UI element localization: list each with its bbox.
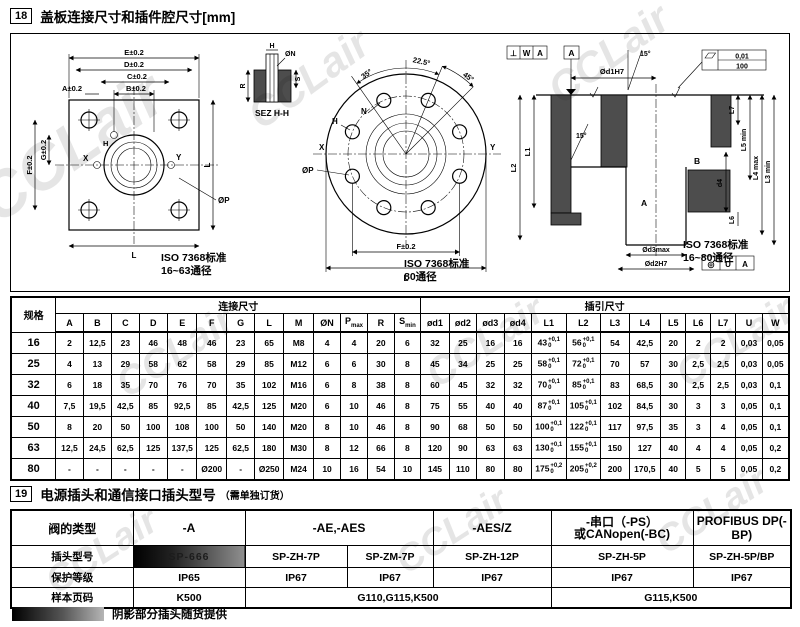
dim-cell: 85	[197, 396, 226, 417]
column-header: R	[368, 314, 394, 333]
dim-label-g: G±0.2	[39, 140, 48, 160]
dim-cell: 155+0,10	[566, 438, 601, 459]
dim-cell: 8	[394, 375, 421, 396]
column-header: ØN	[314, 314, 340, 333]
dim-cell: 10	[314, 459, 340, 481]
dim-cell: 56+0,10	[566, 332, 601, 354]
shaded-note: 阴影部分插头随货提供	[12, 606, 227, 622]
column-header: L3	[601, 314, 629, 333]
column-header: L5	[661, 314, 686, 333]
protection-cell: IP67	[551, 568, 693, 588]
dim-cell: 80	[504, 459, 531, 481]
dim-cell: 3	[686, 396, 710, 417]
dim-cell: 6	[314, 396, 340, 417]
column-header: Pmax	[340, 314, 367, 333]
dim-cell: 35	[226, 375, 254, 396]
dim-cell: 35	[112, 375, 139, 396]
dim-cell: 83	[601, 375, 629, 396]
dim-cell: 45	[421, 354, 449, 375]
dim-cell: 127	[629, 438, 661, 459]
dim-cell: 100+0,10	[531, 417, 566, 438]
dim-cell: 30	[368, 354, 394, 375]
dim-cell: 0,05	[736, 438, 762, 459]
dim-cell: 46	[368, 396, 394, 417]
dim-cell: 108	[168, 417, 197, 438]
dim-l3: L3 min	[765, 161, 772, 184]
datum-a: A	[568, 48, 574, 58]
dim-cell: 38	[368, 375, 394, 396]
dim-cell: 20	[368, 332, 394, 354]
dim-cell: 205+0,20	[566, 459, 601, 481]
column-header: L2	[566, 314, 601, 333]
dim-cell: 72+0,10	[566, 354, 601, 375]
dim-cell: 70	[197, 375, 226, 396]
dim-cell: 43+0,10	[531, 332, 566, 354]
angle-15-left: 15°	[576, 132, 587, 140]
dim-cell: 100	[139, 417, 167, 438]
dim-label-y: Y	[176, 153, 182, 162]
dim-cell: 6	[56, 375, 83, 396]
section19-number: 19	[10, 486, 32, 502]
dim-cell: 0,05	[736, 417, 762, 438]
dim-cell: M24	[283, 459, 314, 481]
plug-table: 阀的类型-A-AE,-AES-AES/Z-串口（-PS）或CANopen(-BC…	[10, 509, 792, 609]
column-header: B	[83, 314, 111, 333]
dim-d3: Ød3max	[642, 247, 670, 254]
dim-cell: 48	[168, 332, 197, 354]
column-header: ød3	[477, 314, 504, 333]
dim-cell: -	[83, 459, 111, 481]
spec-cell: 32	[11, 375, 56, 396]
dim-cell: 62,5	[112, 438, 139, 459]
square-flange-drawing: X Y H E±0.2 D±0.2 C±0.2 B±0.2 A±0.2 F±0.…	[19, 40, 304, 268]
dim-cell: 68	[449, 417, 476, 438]
dim-cell: 175+0,20	[531, 459, 566, 481]
plug-model-cell: SP-ZH-7P	[245, 546, 347, 568]
table-row: 25413295862582985M12663084534252558+0,10…	[11, 354, 789, 375]
catalog-page-cell: K500	[133, 588, 245, 609]
dim-l5: L5 min	[741, 129, 748, 152]
valve-type-cell: -A	[133, 510, 245, 546]
plug-model-cell: SP-ZH-5P	[551, 546, 693, 568]
dim-cell: 105+0,10	[566, 396, 601, 417]
dim-cell: 19,5	[83, 396, 111, 417]
column-header: ød2	[449, 314, 476, 333]
dim-cell: -	[226, 459, 254, 481]
dim-cell: 180	[255, 438, 283, 459]
label-p: ØP	[302, 166, 314, 175]
dim-cell: -	[56, 459, 83, 481]
dim-cell: 130+0,10	[531, 438, 566, 459]
dim-cell: 2	[710, 332, 735, 354]
dim-cell: 35	[661, 417, 686, 438]
dim-cell: 6	[340, 354, 367, 375]
dim-cell: 32	[421, 332, 449, 354]
dim-cell: 2,5	[686, 354, 710, 375]
dim-label-b: B±0.2	[126, 84, 146, 93]
angle-35: 35°	[359, 67, 373, 81]
dim-cell: 29	[112, 354, 139, 375]
dim-cell: 87+0,10	[531, 396, 566, 417]
column-header: Smin	[394, 314, 421, 333]
dim-cell: 50	[504, 417, 531, 438]
dim-l4: L4 max	[753, 156, 760, 180]
dim-cell: 84,5	[629, 396, 661, 417]
dim-cell: 50	[226, 417, 254, 438]
dim-cell: 0,1	[762, 396, 789, 417]
perp-symbol: ⊥	[510, 49, 517, 58]
dim-cell: 58	[139, 354, 167, 375]
dim-cell: 30	[661, 375, 686, 396]
dim-cell: 62,5	[226, 438, 254, 459]
dim-cell: 60	[421, 375, 449, 396]
protection-cell: IP67	[245, 568, 347, 588]
dim-cell: 16	[477, 332, 504, 354]
dim-cell: 8	[394, 417, 421, 438]
dim-label-d: D±0.2	[124, 60, 144, 69]
dim-d4: d4	[717, 179, 724, 187]
dim-cell: 2,5	[710, 354, 735, 375]
dim-cell: 57	[629, 354, 661, 375]
sez-dim-h: H	[269, 43, 274, 50]
dim-cell: 42,5	[112, 396, 139, 417]
row-label-plug-model: 插头型号	[11, 546, 133, 568]
angle-15-top: 15°	[640, 50, 651, 58]
dim-cell: 62	[168, 354, 197, 375]
dim-cell: 25	[449, 332, 476, 354]
dim-cell: 0,05	[762, 332, 789, 354]
dim-cell: 5	[686, 459, 710, 481]
dim-cell: M8	[283, 332, 314, 354]
dim-cell: 50	[477, 417, 504, 438]
dim-cell: 13	[83, 354, 111, 375]
dim-cell: 0,05	[762, 354, 789, 375]
column-header: F	[197, 314, 226, 333]
dim-cell: 125	[139, 438, 167, 459]
table-row: 16212,5234648462365M8442063225161643+0,1…	[11, 332, 789, 354]
dim-cell: 0,1	[762, 417, 789, 438]
dim-cell: 8	[394, 438, 421, 459]
dim-label-h-hole: H	[103, 139, 108, 148]
dim-cell: 20	[83, 417, 111, 438]
plug-model-cell: SP-ZH-5P/BP	[693, 546, 791, 568]
dim-cell: 30	[661, 354, 686, 375]
dim-cell: 46	[139, 332, 167, 354]
dim-cell: 8	[314, 438, 340, 459]
dim-cell: 30	[661, 396, 686, 417]
column-header: L6	[686, 314, 710, 333]
dim-l2: L2	[509, 164, 518, 173]
dim-cell: 25	[477, 354, 504, 375]
dim-cell: 170,5	[629, 459, 661, 481]
dim-cell: 100	[197, 417, 226, 438]
column-header: U	[736, 314, 762, 333]
dim-cell: 40	[661, 459, 686, 481]
dim-cell: 18	[83, 375, 111, 396]
dim-cell: Ø250	[255, 459, 283, 481]
shaded-swatch	[12, 607, 104, 621]
dim-cell: 10	[340, 396, 367, 417]
dim-cell: 10	[394, 459, 421, 481]
section19-subtitle: （需单独订货）	[220, 487, 290, 502]
dim-cell: 45	[449, 375, 476, 396]
dim-cell: M20	[283, 417, 314, 438]
dim-cell: 76	[168, 375, 197, 396]
dim-cell: 117	[601, 417, 629, 438]
sez-hh-detail: H ØN R S SEZ H-H	[240, 43, 302, 118]
dim-cell: 0,03	[736, 354, 762, 375]
dim-cell: 125	[197, 438, 226, 459]
dim-cell: 0,05	[736, 459, 762, 481]
dim-cell: 8	[394, 396, 421, 417]
dim-cell: 145	[421, 459, 449, 481]
dim-cell: 16	[504, 332, 531, 354]
dim-cell: 3	[686, 417, 710, 438]
dim-cell: 4	[686, 438, 710, 459]
dim-cell: 2	[686, 332, 710, 354]
dim-cell: 16	[340, 459, 367, 481]
column-header: E	[168, 314, 197, 333]
dim-cell: 20	[661, 332, 686, 354]
dim-cell: 46	[197, 332, 226, 354]
dim-cell: 75	[421, 396, 449, 417]
section18-title: 18 盖板连接尺寸和插件腔尺寸[mm]	[10, 6, 235, 26]
angle-45: 45°	[461, 70, 475, 84]
dim-cell: 6	[394, 332, 421, 354]
protection-cell: IP67	[693, 568, 791, 588]
dim-cell: 122+0,10	[566, 417, 601, 438]
label-n: N	[361, 107, 367, 116]
section19-title: 19 电源插头和通信接口插头型号 （需单独订货）	[10, 484, 290, 504]
dim-cell: 58	[197, 354, 226, 375]
spec-cell: 50	[11, 417, 56, 438]
dim-cell: 54	[601, 332, 629, 354]
fig1-caption: ISO 7368标准16~63通径	[161, 252, 226, 278]
column-header: D	[139, 314, 167, 333]
column-header: G	[226, 314, 254, 333]
dim-cell: 63	[477, 438, 504, 459]
dim-cell: 23	[112, 332, 139, 354]
row-label-catalog-page: 样本页码	[11, 588, 133, 609]
dim-cell: 2	[56, 332, 83, 354]
dim-cell: Ø200	[197, 459, 226, 481]
dim-cell: M30	[283, 438, 314, 459]
column-header: L7	[710, 314, 735, 333]
dim-cell: -	[139, 459, 167, 481]
dim-label-a: A±0.2	[62, 84, 82, 93]
dim-label-x: X	[83, 154, 89, 163]
flatness-base: 100	[736, 64, 748, 71]
dim-cell: 0,03	[736, 332, 762, 354]
dim-l7: L7	[729, 106, 736, 114]
valve-type-cell: -串口（-PS）或CANopen(-BC)	[551, 510, 693, 546]
dim-cell: M12	[283, 354, 314, 375]
dim-cell: 120	[421, 438, 449, 459]
table-row: 326183570767035102M16683886045323270+0,1…	[11, 375, 789, 396]
spec-cell: 25	[11, 354, 56, 375]
column-header: W	[762, 314, 789, 333]
dim-cell: 85+0,10	[566, 375, 601, 396]
label-b: B	[694, 156, 700, 166]
dim-cell: 4	[340, 332, 367, 354]
dim-cell: 97,5	[629, 417, 661, 438]
dim-d2: Ød2H7	[645, 261, 668, 268]
plug-model-cell: SP-ZH-12P	[433, 546, 551, 568]
dim-cell: 25	[504, 354, 531, 375]
shaded-note-text: 阴影部分插头随货提供	[112, 606, 227, 622]
dim-cell: 8	[56, 417, 83, 438]
valve-type-cell: -AE,-AES	[245, 510, 433, 546]
table-row: 508205010010810050140M208104689068505010…	[11, 417, 789, 438]
dim-cell: 34	[449, 354, 476, 375]
table-row: 80-----Ø200-Ø250M24101654101451108080175…	[11, 459, 789, 481]
dim-cell: 8	[314, 417, 340, 438]
dim-label-c: C±0.2	[127, 72, 147, 81]
dim-cell: 70	[601, 354, 629, 375]
spec-cell: 40	[11, 396, 56, 417]
group-header-cavity: 插引尺寸	[421, 297, 789, 314]
dim-cell: 58+0,10	[531, 354, 566, 375]
dim-cell: 92,5	[168, 396, 197, 417]
dim-label-p: ØP	[218, 196, 230, 205]
dim-f: F±0.2	[396, 242, 415, 251]
dim-cell: 3	[710, 396, 735, 417]
dim-l1: L1	[523, 148, 532, 157]
dim-cell: 137,5	[168, 438, 197, 459]
section19-heading: 电源插头和通信接口插头型号	[40, 484, 216, 504]
round-flange-drawing: 35° 22.5° 45° H N X Y ØP F±0.2 L	[301, 42, 521, 288]
dimension-table: 规格连接尺寸插引尺寸ABCDEFGLMØNPmaxRSminød1ød2ød3ø…	[10, 296, 790, 481]
dim-cell: 10	[340, 417, 367, 438]
dim-cell: 85	[139, 396, 167, 417]
dim-cell: -	[168, 459, 197, 481]
section18-heading: 盖板连接尺寸和插件腔尺寸[mm]	[40, 6, 235, 26]
dim-cell: 102	[601, 396, 629, 417]
dim-cell: 32	[477, 375, 504, 396]
column-header: ød4	[504, 314, 531, 333]
table-row: 407,519,542,58592,58542,5125M20610468755…	[11, 396, 789, 417]
dim-cell: 23	[226, 332, 254, 354]
sez-title: SEZ H-H	[255, 108, 289, 118]
valve-type-cell: -AES/Z	[433, 510, 551, 546]
dim-cell: 29	[226, 354, 254, 375]
table-row: 6312,524,562,5125137,512562,5180M3081266…	[11, 438, 789, 459]
dim-label-e: E±0.2	[124, 48, 144, 57]
perpendicularity-frame: ⊥ W A	[507, 46, 547, 59]
dim-cell: 110	[449, 459, 476, 481]
dim-cell: 40	[504, 396, 531, 417]
dim-cell: 32	[504, 375, 531, 396]
dim-cell: 7,5	[56, 396, 83, 417]
dim-cell: 102	[255, 375, 283, 396]
dim-cell: 12	[340, 438, 367, 459]
dim-cell: 68,5	[629, 375, 661, 396]
dim-cell: 42,5	[629, 332, 661, 354]
dim-cell: 55	[449, 396, 476, 417]
dim-label-f: F±0.2	[25, 155, 34, 174]
fig3-caption: ISO 7368标准16~80通径	[683, 239, 748, 265]
protection-cell: IP65	[133, 568, 245, 588]
dim-cell: 4	[710, 417, 735, 438]
column-header: L4	[629, 314, 661, 333]
dim-cell: 40	[477, 396, 504, 417]
spec-cell: 80	[11, 459, 56, 481]
protection-cell: IP67	[433, 568, 551, 588]
dim-cell: 150	[601, 438, 629, 459]
dim-cell: 0,2	[762, 459, 789, 481]
dim-cell: 8	[394, 354, 421, 375]
dim-cell: 140	[255, 417, 283, 438]
dim-cell: 0,1	[762, 375, 789, 396]
catalog-page-cell: G115,K500	[551, 588, 791, 609]
perp-w: W	[523, 49, 531, 58]
dim-cell: 46	[368, 417, 394, 438]
row-label-valve-type: 阀的类型	[11, 510, 133, 546]
dim-label-l-bottom: L	[132, 251, 137, 260]
dim-d1: Ød1H7	[600, 67, 624, 76]
dim-cell: 85	[255, 354, 283, 375]
spec-cell: 16	[11, 332, 56, 354]
fig2-caption: ISO 7368标准80通径	[404, 258, 469, 284]
dim-cell: M20	[283, 396, 314, 417]
dim-cell: 24,5	[83, 438, 111, 459]
dim-cell: 12,5	[56, 438, 83, 459]
dim-cell: 125	[255, 396, 283, 417]
dim-cell: 54	[368, 459, 394, 481]
column-header: C	[112, 314, 139, 333]
spec-cell: 63	[11, 438, 56, 459]
dim-cell: 12,5	[83, 332, 111, 354]
dim-cell: 80	[477, 459, 504, 481]
dim-cell: 6	[314, 375, 340, 396]
dim-cell: 70	[139, 375, 167, 396]
spec-header: 规格	[11, 297, 56, 332]
label-a: A	[641, 198, 647, 208]
dim-cell: 0,2	[762, 438, 789, 459]
dim-cell: 2,5	[710, 375, 735, 396]
sez-dim-n: ØN	[285, 51, 296, 58]
sez-dim-r: R	[240, 83, 247, 88]
dim-cell: 70+0,10	[531, 375, 566, 396]
section18-number: 18	[10, 8, 32, 24]
catalog-page-cell: G110,G115,K500	[245, 588, 551, 609]
plug-model-cell: SP-666	[133, 546, 245, 568]
column-header: ød1	[421, 314, 449, 333]
dim-cell: 4	[56, 354, 83, 375]
row-label-protection: 保护等级	[11, 568, 133, 588]
figure-panel: X Y H E±0.2 D±0.2 C±0.2 B±0.2 A±0.2 F±0.…	[10, 33, 790, 292]
dim-cell: 200	[601, 459, 629, 481]
column-header: A	[56, 314, 83, 333]
column-header: L	[255, 314, 283, 333]
group-header-connection: 连接尺寸	[56, 297, 421, 314]
flatness-frame: 0,01 100	[678, 50, 766, 88]
dim-cell: 2,5	[686, 375, 710, 396]
label-y: Y	[490, 143, 496, 152]
dim-cell: 4	[314, 332, 340, 354]
dim-cell: -	[112, 459, 139, 481]
dim-cell: 6	[314, 354, 340, 375]
dim-cell: 0,05	[736, 396, 762, 417]
dim-cell: 40	[661, 438, 686, 459]
dim-label-l-right: L	[203, 162, 212, 167]
flatness-value: 0,01	[735, 54, 749, 61]
column-header: M	[283, 314, 314, 333]
dim-cell: 65	[255, 332, 283, 354]
plug-model-cell: SP-ZM-7P	[347, 546, 433, 568]
column-header: L1	[531, 314, 566, 333]
dim-cell: 90	[421, 417, 449, 438]
